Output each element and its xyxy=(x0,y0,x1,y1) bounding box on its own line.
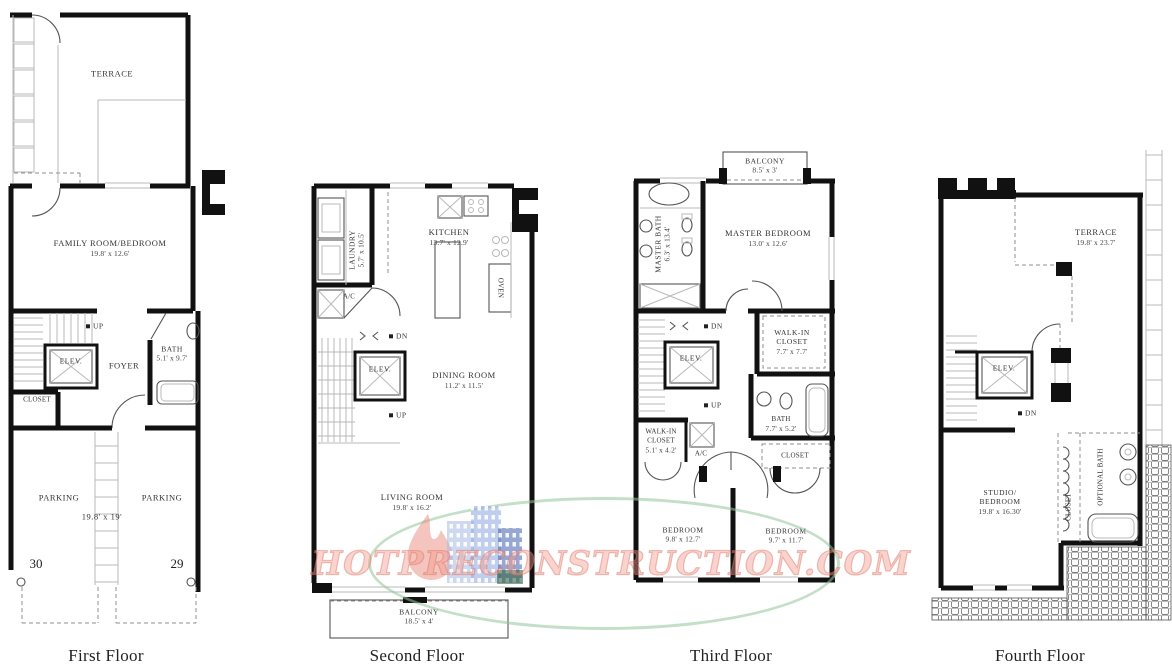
watermark-logo xyxy=(0,0,1172,669)
flame-icon xyxy=(408,514,453,580)
floorplan-sheet: TERRACE FAMILY ROOM/BEDROOM 19.8' x 12.6… xyxy=(0,0,1172,669)
buildings-icon xyxy=(447,506,523,584)
